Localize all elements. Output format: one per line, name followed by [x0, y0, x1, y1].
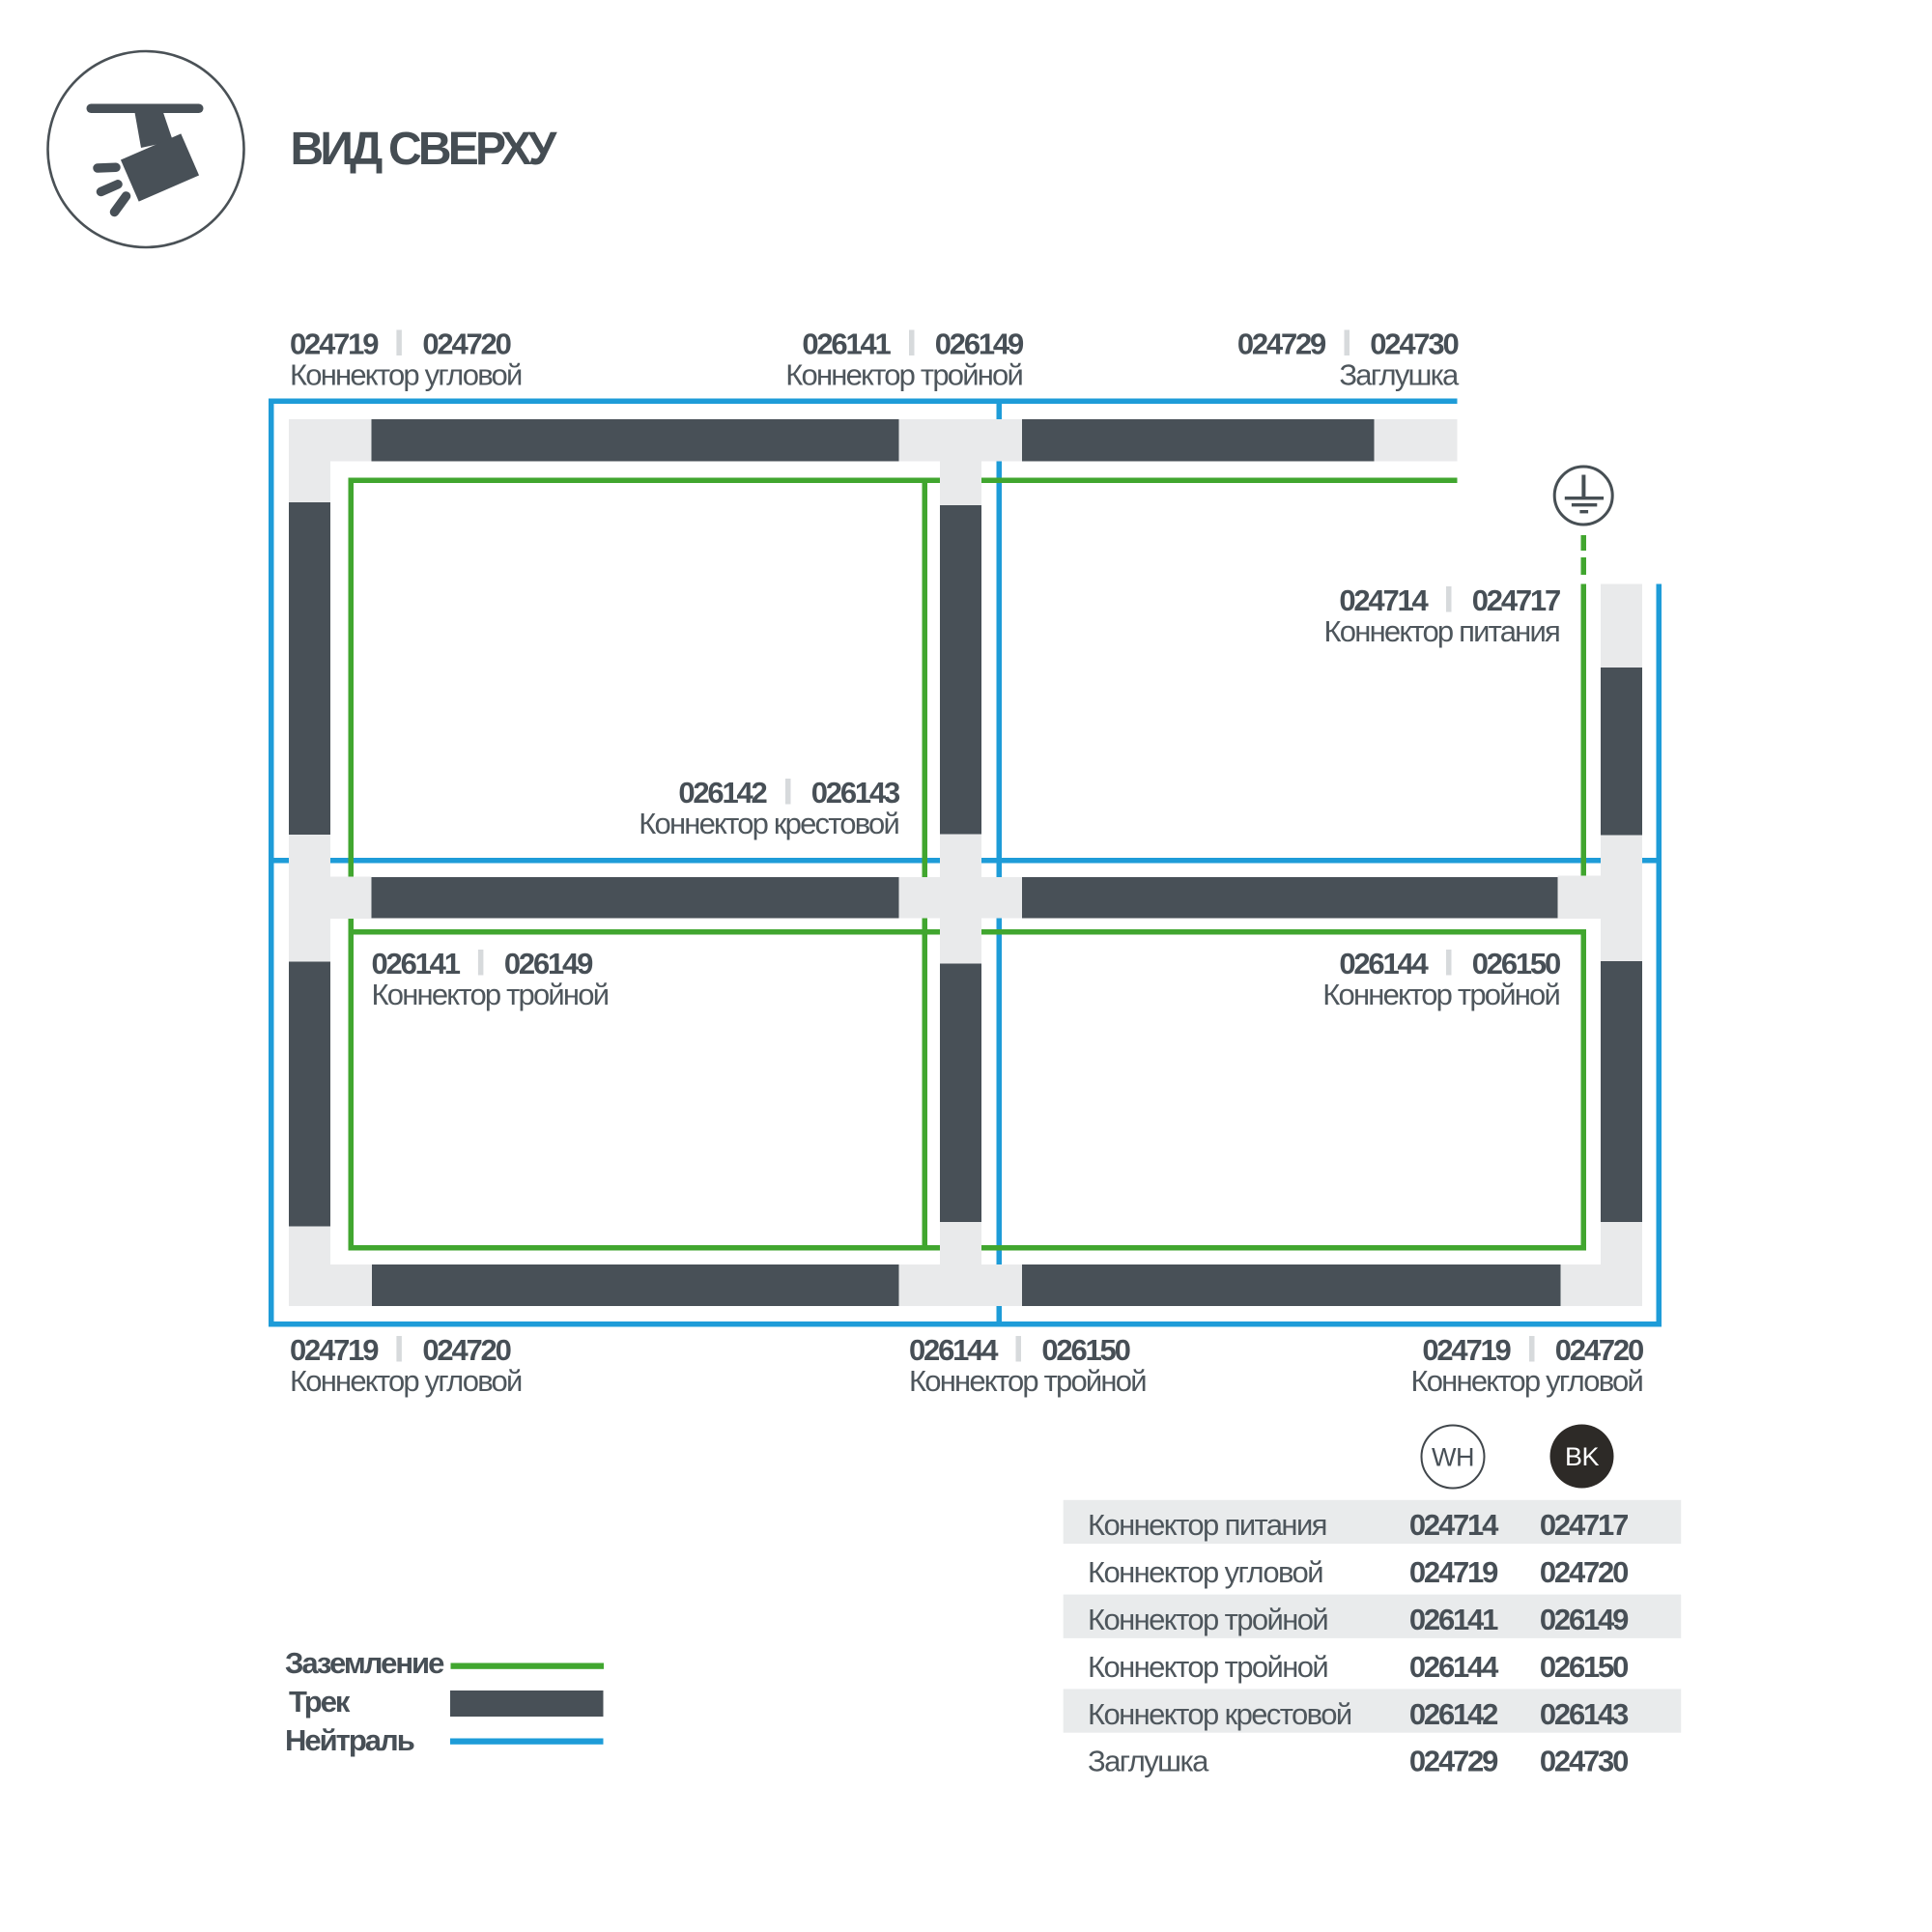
- svg-text:024720: 024720: [422, 327, 510, 361]
- svg-text:026149: 026149: [935, 327, 1024, 361]
- svg-text:024714: 024714: [1409, 1508, 1499, 1542]
- svg-text:024714: 024714: [1339, 583, 1429, 617]
- svg-text:024729: 024729: [1409, 1745, 1498, 1778]
- svg-text:Коннектор тройной: Коннектор тройной: [785, 358, 1022, 392]
- svg-text:026150: 026150: [1041, 1333, 1129, 1367]
- svg-text:Коннектор тройной: Коннектор тройной: [1088, 1603, 1327, 1636]
- svg-text:024730: 024730: [1540, 1745, 1628, 1778]
- svg-text:024719: 024719: [1422, 1333, 1511, 1367]
- svg-text:026142: 026142: [678, 776, 766, 810]
- svg-text:026141: 026141: [802, 327, 891, 361]
- svg-text:Коннектор питания: Коннектор питания: [1324, 614, 1559, 648]
- svg-text:Заглушка: Заглушка: [1339, 358, 1460, 392]
- svg-text:Коннектор тройной: Коннектор тройной: [909, 1364, 1146, 1398]
- svg-text:Коннектор угловой: Коннектор угловой: [290, 1364, 522, 1398]
- svg-text:Коннектор тройной: Коннектор тройной: [1088, 1650, 1327, 1684]
- svg-text:026144: 026144: [909, 1333, 999, 1367]
- svg-text:024729: 024729: [1237, 327, 1326, 361]
- svg-text:024720: 024720: [422, 1333, 510, 1367]
- svg-text:Коннектор угловой: Коннектор угловой: [1088, 1555, 1322, 1589]
- svg-text:026142: 026142: [1409, 1697, 1497, 1731]
- svg-text:024717: 024717: [1540, 1508, 1628, 1542]
- svg-text:Коннектор крестовой: Коннектор крестовой: [639, 807, 898, 840]
- svg-text:024719: 024719: [1409, 1555, 1498, 1589]
- svg-text:Коннектор угловой: Коннектор угловой: [1410, 1364, 1642, 1398]
- svg-text:Заглушка: Заглушка: [1088, 1745, 1209, 1778]
- svg-text:WH: WH: [1432, 1443, 1474, 1472]
- svg-text:Заземление: Заземление: [285, 1646, 444, 1680]
- svg-text:Коннектор крестовой: Коннектор крестовой: [1088, 1697, 1351, 1731]
- svg-text:024717: 024717: [1472, 583, 1560, 617]
- svg-text:026144: 026144: [1339, 947, 1429, 980]
- svg-text:026150: 026150: [1472, 947, 1560, 980]
- svg-text:BK: BK: [1565, 1442, 1600, 1471]
- svg-text:024719: 024719: [290, 1333, 379, 1367]
- svg-text:024720: 024720: [1555, 1333, 1643, 1367]
- svg-text:026143: 026143: [1540, 1697, 1629, 1731]
- svg-text:Коннектор тройной: Коннектор тройной: [372, 978, 609, 1011]
- svg-text:026143: 026143: [811, 776, 900, 810]
- svg-text:026149: 026149: [504, 947, 593, 980]
- svg-text:Коннектор питания: Коннектор питания: [1088, 1508, 1326, 1542]
- svg-text:024730: 024730: [1370, 327, 1458, 361]
- svg-text:026144: 026144: [1409, 1650, 1499, 1684]
- svg-text:ВИД СВЕРХУ: ВИД СВЕРХУ: [291, 124, 558, 175]
- svg-text:Нейтраль: Нейтраль: [285, 1723, 414, 1757]
- svg-text:Коннектор угловой: Коннектор угловой: [290, 358, 522, 392]
- svg-text:Коннектор тройной: Коннектор тройной: [1322, 978, 1559, 1011]
- svg-text:Трек: Трек: [289, 1685, 351, 1719]
- svg-text:026150: 026150: [1540, 1650, 1628, 1684]
- svg-text:024719: 024719: [290, 327, 379, 361]
- svg-text:024720: 024720: [1540, 1555, 1628, 1589]
- svg-text:026141: 026141: [1409, 1603, 1498, 1636]
- svg-text:026149: 026149: [1540, 1603, 1629, 1636]
- svg-text:026141: 026141: [372, 947, 461, 980]
